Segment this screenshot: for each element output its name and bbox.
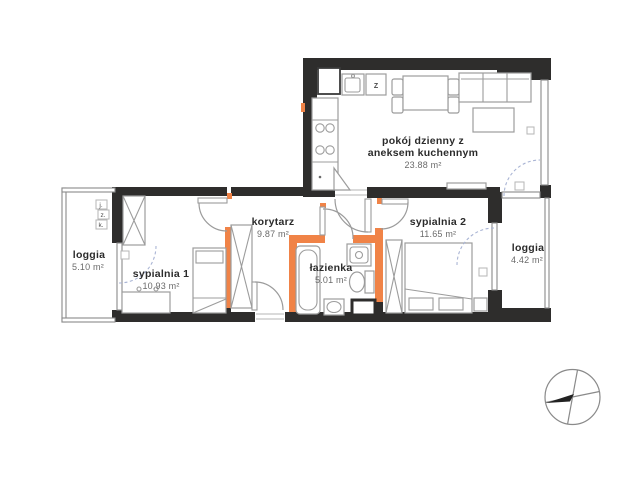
- dining-chair-4: [448, 97, 459, 113]
- bedroom1-name: sypialnia 1: [133, 268, 189, 280]
- wardrobe-bedroom2: [386, 240, 402, 313]
- hallway-area: 9.87 m²: [257, 229, 289, 239]
- accent-wall-bath-right: [375, 228, 383, 302]
- entrance-door-swing: [255, 282, 283, 310]
- loggia-left-rail-top: [62, 188, 115, 192]
- kitchen-shaft-box: [318, 68, 340, 94]
- tag-living-balcony: [515, 182, 524, 190]
- floor-plan-drawing: Z: [0, 0, 640, 480]
- loggia-right-name: loggia: [512, 242, 544, 254]
- loggia-right-rail: [545, 198, 549, 308]
- bedroom2-door-leaf: [382, 199, 408, 204]
- living-room-window: [541, 80, 548, 185]
- desk-knob-1: [137, 287, 141, 291]
- living-balcony-swing: [504, 160, 540, 196]
- loggia-left-rail-left: [62, 188, 66, 322]
- legend-item-j: j.: [98, 202, 102, 209]
- wall-right-under-window: [540, 185, 551, 198]
- tv-sideboard: [447, 183, 486, 189]
- bedroom2-window: [492, 223, 497, 290]
- dining-table: [403, 76, 448, 110]
- counter-dot: [319, 176, 322, 179]
- bedroom1-area: 10.93 m²: [142, 281, 179, 291]
- bathroom-name: łazienka: [310, 262, 353, 274]
- bedroom2-area: 11.65 m²: [420, 229, 456, 239]
- desk: [122, 292, 170, 313]
- wall-bedroom2-loggia-top-block: [488, 192, 502, 223]
- kitchen-corner-wedge: [334, 168, 350, 190]
- legend-item-z: z.: [100, 212, 105, 219]
- tag-bedroom2-window: [479, 268, 487, 276]
- tag-living-window: [527, 127, 534, 134]
- bedroom2-door-swing: [381, 202, 408, 229]
- loggia-left-name: loggia: [73, 249, 105, 261]
- toilet-bowl: [350, 272, 365, 292]
- dining-chair-2: [392, 97, 403, 113]
- dishwasher-label: Z: [374, 83, 379, 90]
- wardrobe-hallway: [231, 225, 252, 308]
- wardrobe-bedroom1: [123, 196, 145, 245]
- utility-shaft: [352, 300, 375, 315]
- wall-bedroom1-top: [115, 187, 227, 196]
- wall-hallway-top: [231, 187, 303, 196]
- loggia-right-area: 4.42 m²: [511, 255, 543, 265]
- bed-frame: [193, 248, 226, 313]
- bathroom-door-leaf: [320, 207, 325, 235]
- floor-plan-canvas: Z: [0, 0, 640, 480]
- living-room-name-line2: aneksem kuchennym: [368, 147, 478, 159]
- wall-left-corner-block: [112, 187, 123, 243]
- accent-hinge-bedroom1: [227, 193, 232, 199]
- living-room-area: 23.88 m²: [404, 160, 441, 170]
- bedroom1-door-swing: [199, 203, 227, 231]
- dining-chair-3: [448, 79, 459, 95]
- accent-tick-living-wall: [301, 103, 305, 112]
- bed-bedroom1: [193, 248, 226, 313]
- accent-hinge-bedroom2: [377, 198, 382, 204]
- wall-loggia-right-bottom: [488, 308, 551, 322]
- living-room-name-line1: pokój dzienny z: [382, 135, 464, 147]
- entrance-door-leaf: [252, 282, 257, 310]
- compass-rose: [545, 370, 600, 425]
- tag-bedroom1-window: [121, 251, 129, 259]
- living-balcony-door: [502, 192, 540, 198]
- loggia-left-rail-bottom: [62, 318, 115, 322]
- hallway-name: korytarz: [252, 216, 295, 228]
- dining-chair-1: [392, 79, 403, 95]
- coffee-table: [473, 108, 514, 132]
- bathroom-area: 5.01 m²: [315, 275, 347, 285]
- bedroom1-door-leaf: [198, 198, 227, 203]
- sofa: [459, 73, 531, 102]
- legend-jzk: j. z. k.: [96, 200, 109, 229]
- toilet-tank: [365, 271, 374, 293]
- bedroom2-name: sypialnia 2: [410, 216, 466, 228]
- living-room-furniture: [392, 73, 531, 189]
- loggia-left-area: 5.10 m²: [72, 262, 104, 272]
- living-door-leaf: [365, 199, 371, 232]
- kitchen-fixtures: Z: [312, 68, 386, 190]
- nightstand-bedroom2: [474, 298, 487, 311]
- bed-bedroom2: [405, 243, 472, 313]
- legend-item-k: k.: [98, 222, 103, 229]
